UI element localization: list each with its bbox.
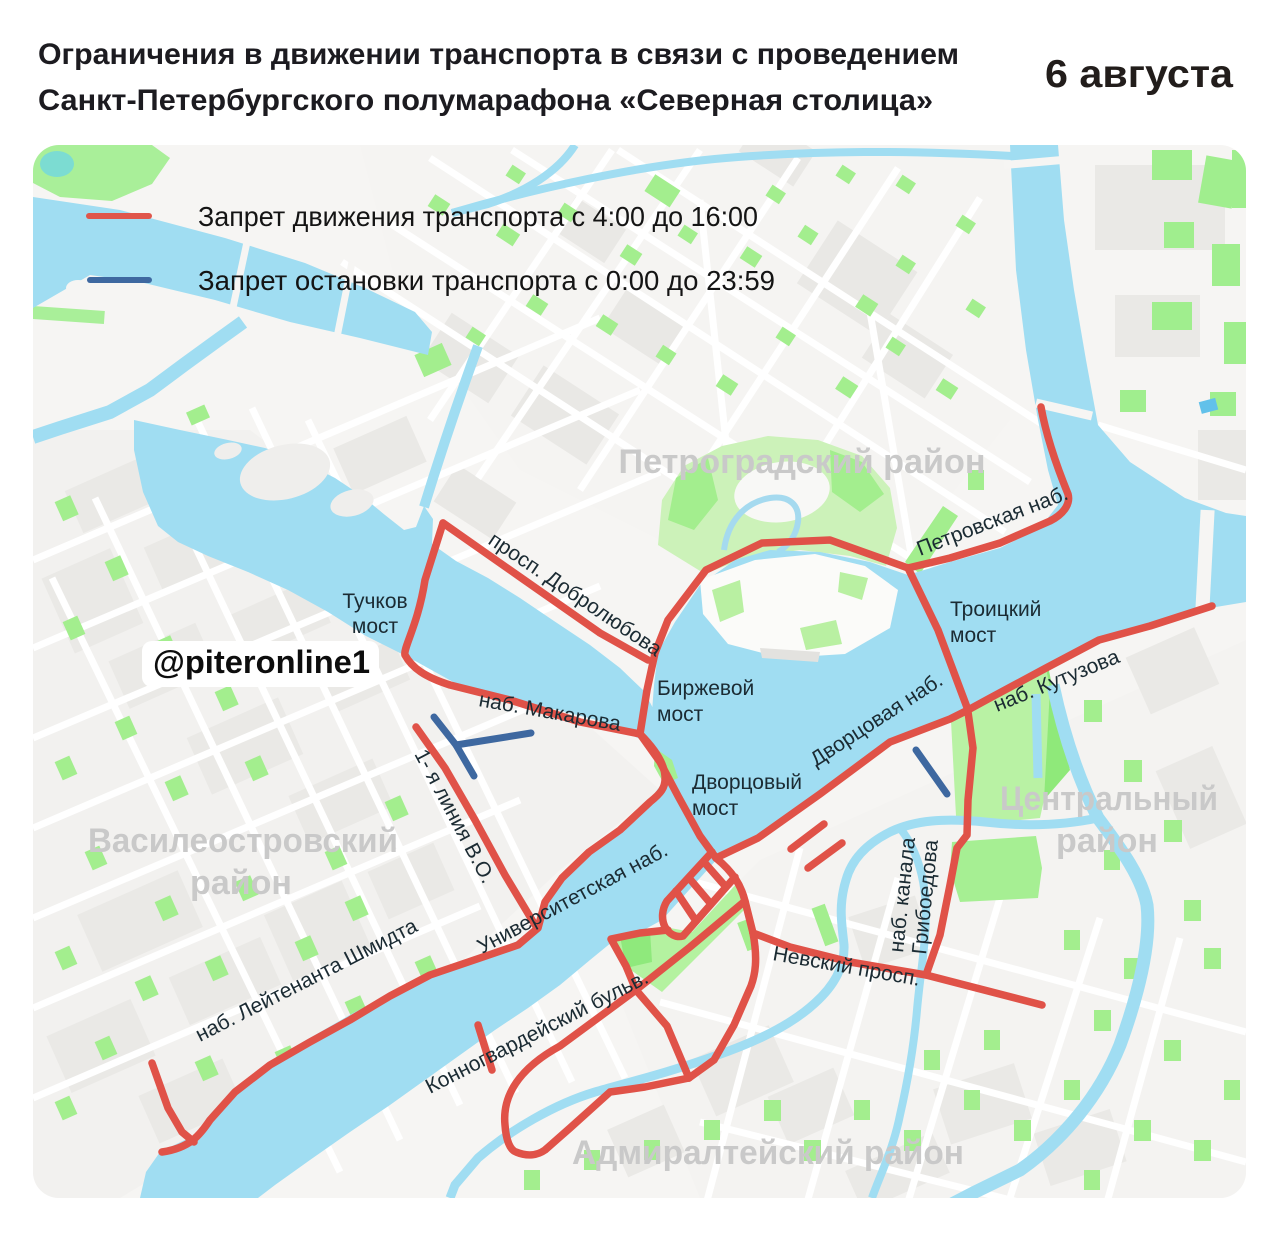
svg-text:Троицкий: Троицкий [950,598,1041,621]
svg-text:Адмиралтейский район: Адмиралтейский район [572,1134,964,1172]
svg-text:Санкт-Петербургского полумараф: Санкт-Петербургского полумарафона «Север… [38,84,933,117]
svg-text:мост: мост [692,797,739,820]
svg-text:мост: мост [352,615,399,638]
svg-text:Центральный: Центральный [1000,780,1218,818]
svg-text:Ограничения в движении транспо: Ограничения в движении транспорта в связ… [38,38,959,71]
svg-text:@piteronline1: @piteronline1 [153,644,370,680]
svg-text:Петроградский район: Петроградский район [619,443,986,481]
svg-text:Василеостровский: Василеостровский [88,822,398,860]
svg-text:Запрет остановки транспорта с: Запрет остановки транспорта с 0:00 до 23… [198,265,775,296]
svg-text:Тучков: Тучков [342,590,407,613]
svg-text:Биржевой: Биржевой [657,677,754,700]
svg-text:Запрет движения транспорта с 4: Запрет движения транспорта с 4:00 до 16:… [198,201,758,232]
svg-text:район: район [1056,822,1158,860]
svg-text:мост: мост [657,703,704,726]
svg-text:6 августа: 6 августа [1045,53,1233,96]
svg-text:Дворцовый: Дворцовый [692,771,802,794]
svg-text:район: район [190,864,292,902]
svg-text:мост: мост [950,624,997,647]
